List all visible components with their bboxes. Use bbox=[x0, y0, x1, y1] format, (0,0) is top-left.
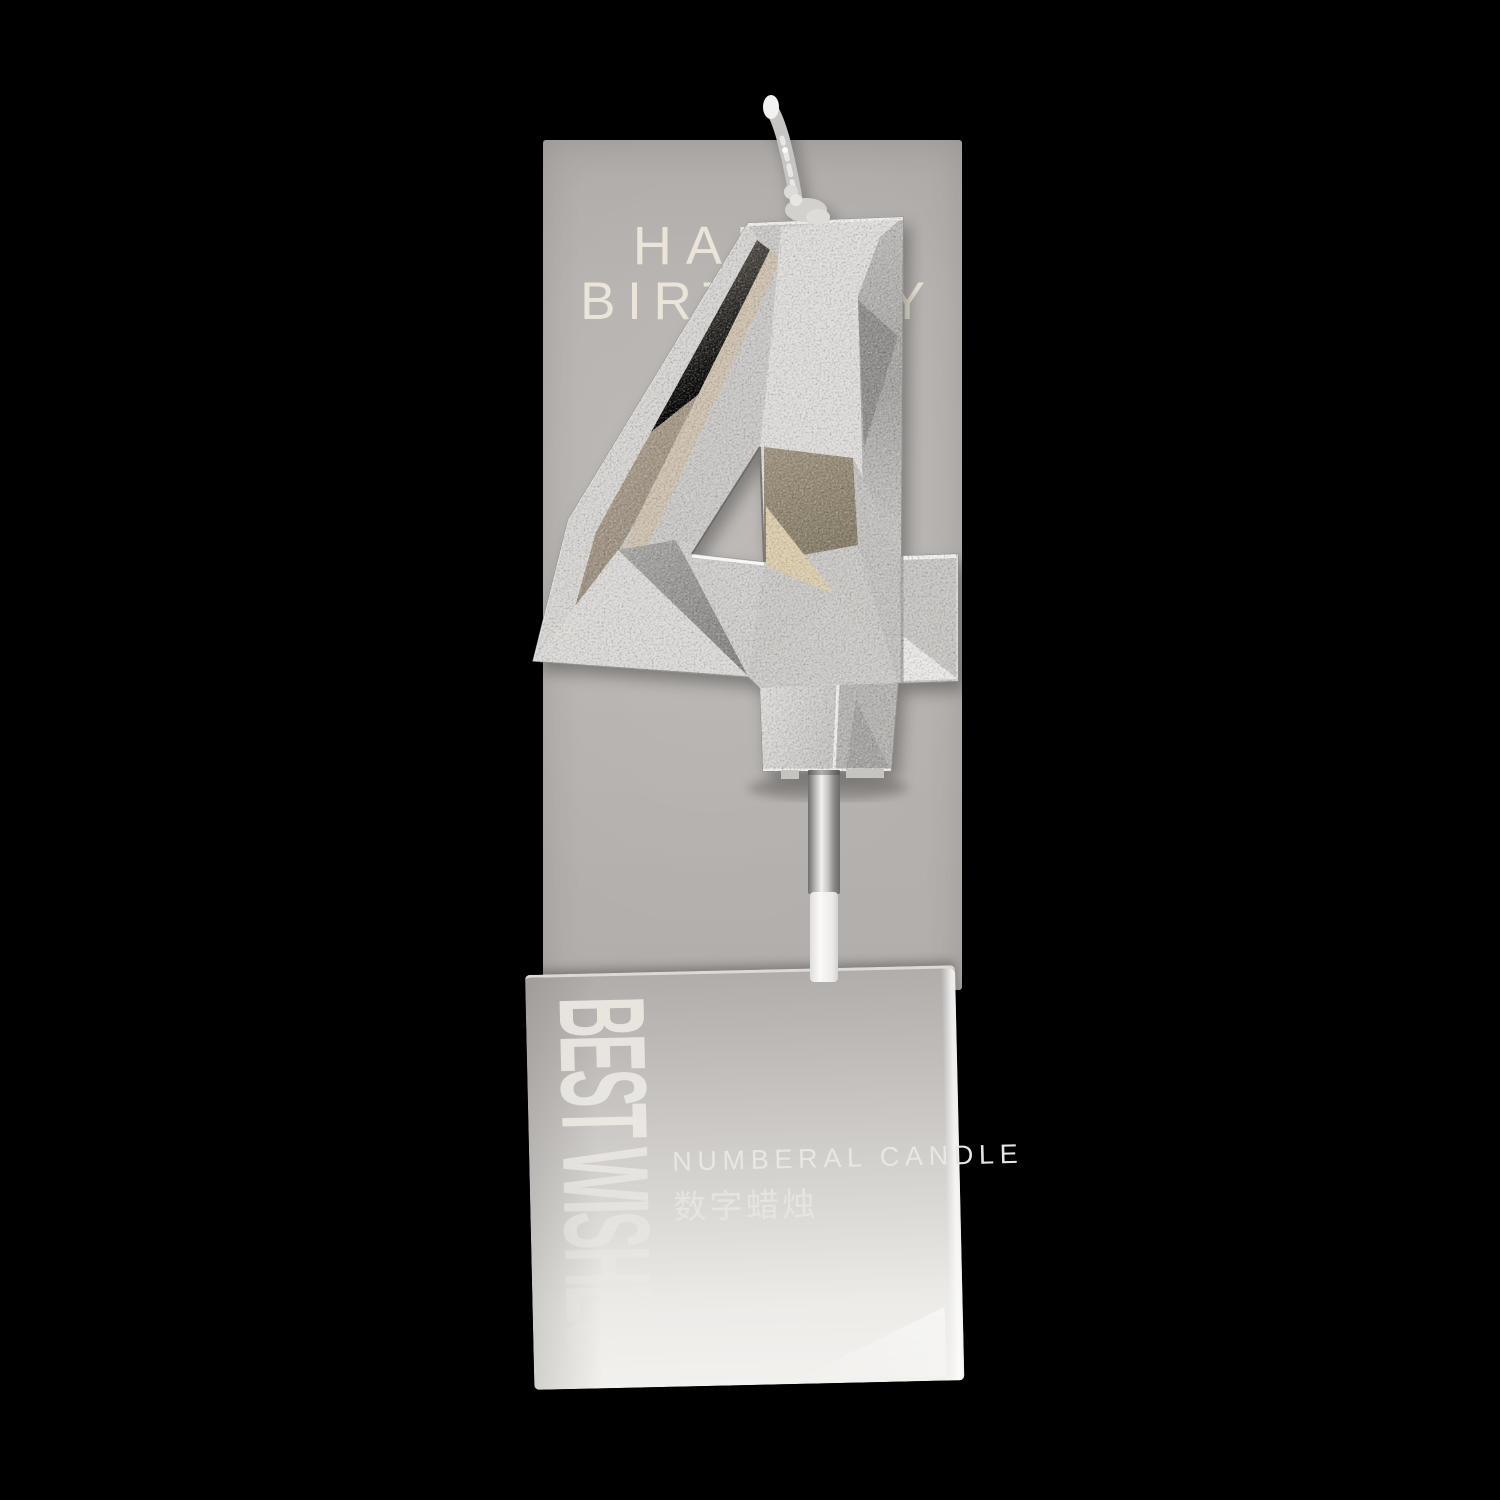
best-wishes-text: BEST WISHES bbox=[541, 995, 671, 1355]
heading-line-happy: HAPPY bbox=[543, 218, 976, 274]
backing-card: HAPPY BIRTHDAY bbox=[543, 140, 962, 990]
heading-line-birthday: BIRTHDAY bbox=[543, 274, 974, 330]
happy-birthday-heading: HAPPY BIRTHDAY bbox=[543, 218, 962, 330]
base-box: BEST WISHES NUMBERAL CANDLE 数字蜡烛 bbox=[525, 965, 964, 1390]
product-name-zh: 数字蜡烛 bbox=[673, 1177, 819, 1228]
box-corner-sheen bbox=[795, 1307, 947, 1380]
